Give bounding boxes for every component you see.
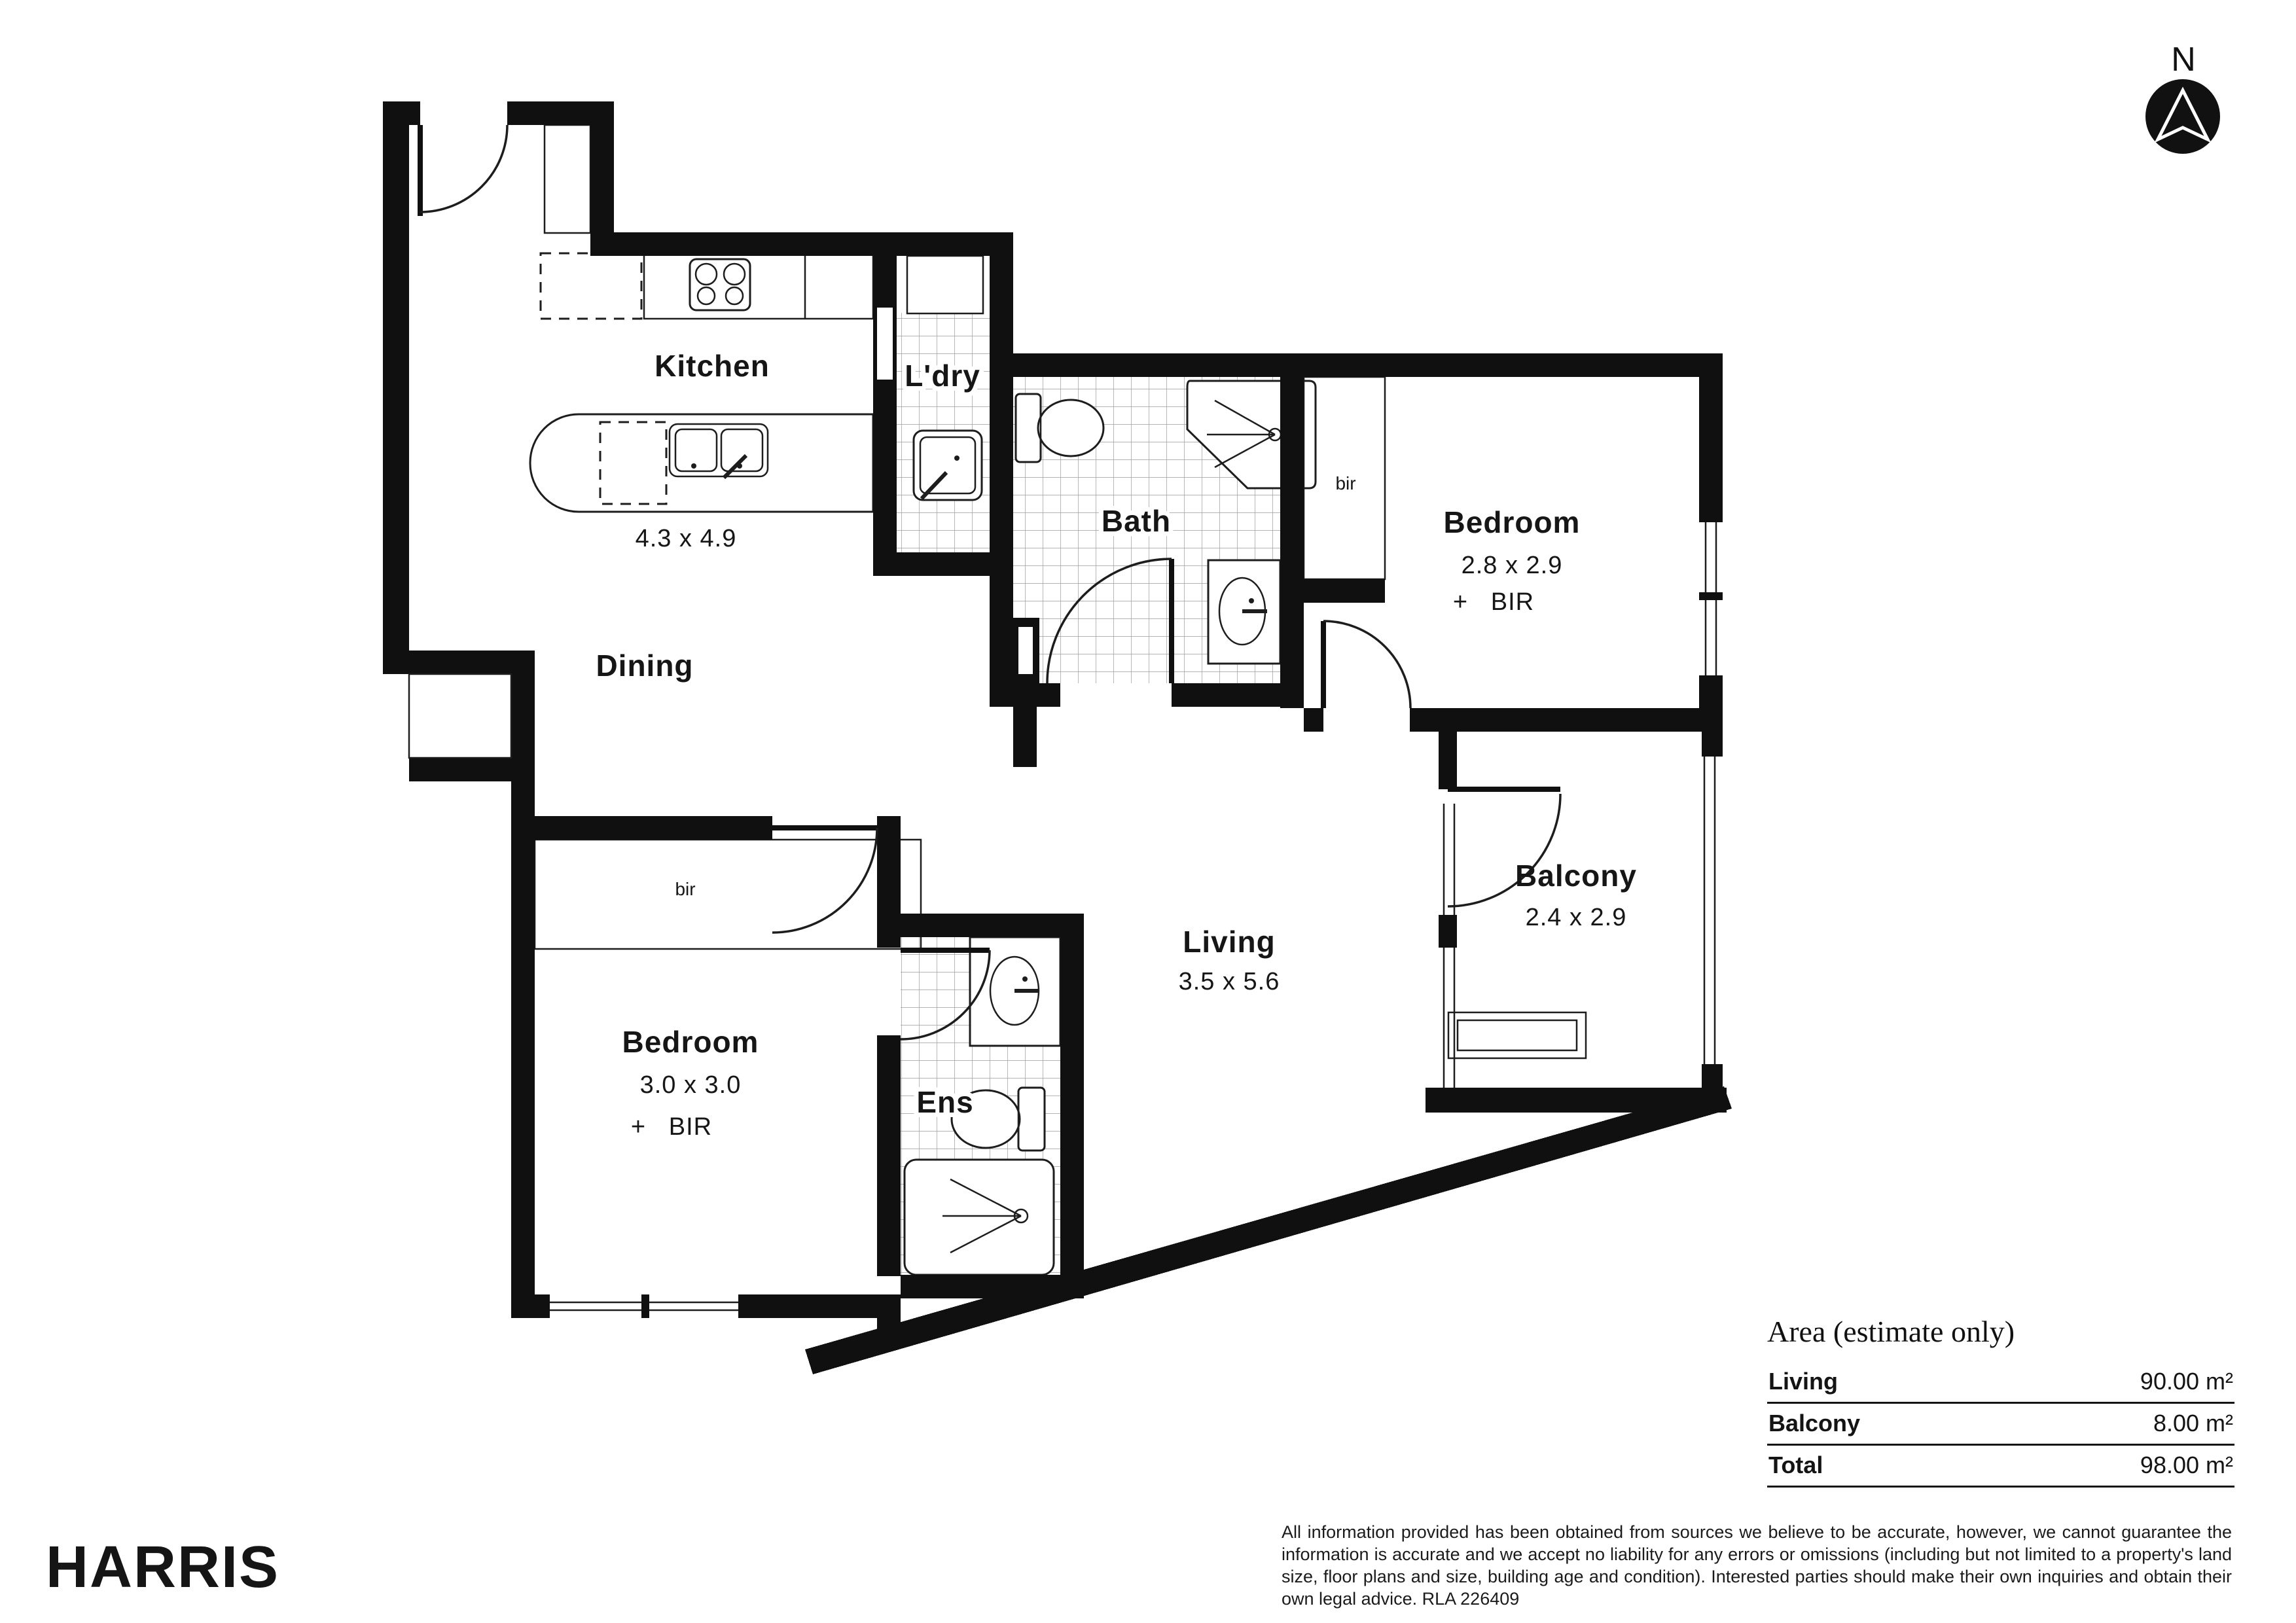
area-row-value: 98.00 m² bbox=[2140, 1452, 2233, 1479]
bedroom1-door bbox=[1323, 621, 1410, 708]
north-label: N bbox=[2171, 41, 2196, 79]
bedroom2-bir-closet bbox=[535, 840, 921, 949]
bedroom2-label: Bedroom bbox=[622, 1025, 759, 1059]
ensuite-label: Ens bbox=[916, 1085, 973, 1119]
bath-label: Bath bbox=[1102, 504, 1171, 538]
balcony-planter bbox=[1448, 1012, 1586, 1058]
ensuite-vanity-icon bbox=[970, 937, 1060, 1046]
area-row-value: 8.00 m² bbox=[2153, 1410, 2233, 1437]
laundry-label: L'dry bbox=[905, 359, 980, 393]
balcony-label: Balcony bbox=[1515, 859, 1637, 893]
bath-vanity-icon bbox=[1208, 560, 1280, 664]
kitchen-label: Kitchen bbox=[655, 349, 770, 383]
bedroom2-bir: + BIR bbox=[631, 1113, 712, 1141]
bedroom2-dims: 3.0 x 3.0 bbox=[640, 1071, 742, 1099]
bedroom1-dims: 2.8 x 2.9 bbox=[1462, 552, 1563, 579]
area-table-title: Area (estimate only) bbox=[1767, 1314, 2234, 1349]
area-row-total: Total 98.00 m² bbox=[1767, 1446, 2234, 1488]
washer-space bbox=[907, 256, 983, 313]
bedroom1-bir: + BIR bbox=[1453, 588, 1534, 616]
bedroom1-robe-label: bir bbox=[1335, 473, 1355, 493]
bedroom2-door bbox=[772, 828, 877, 933]
balcony-dims: 2.4 x 2.9 bbox=[1526, 904, 1627, 931]
floorplan-page: Kitchen 4.3 x 4.9 L'dry Bath Dining Livi… bbox=[0, 0, 2296, 1623]
living-dims: 3.5 x 5.6 bbox=[1179, 968, 1280, 995]
fridge-provision-dashed bbox=[541, 253, 641, 319]
entry-cupboard bbox=[545, 125, 590, 233]
bedroom2-robe-label: bir bbox=[675, 879, 695, 899]
ensuite-shower-icon bbox=[905, 1160, 1054, 1275]
kitchen-island bbox=[530, 414, 873, 512]
dining-label: Dining bbox=[596, 649, 693, 683]
area-table: Area (estimate only) Living 90.00 m² Bal… bbox=[1767, 1314, 2234, 1488]
area-row-value: 90.00 m² bbox=[2140, 1368, 2233, 1395]
area-row-label: Total bbox=[1768, 1452, 1823, 1479]
area-row-label: Living bbox=[1768, 1368, 1838, 1395]
area-row-label: Balcony bbox=[1768, 1410, 1860, 1437]
area-row-living: Living 90.00 m² bbox=[1767, 1362, 2234, 1404]
harris-logo: HARRIS bbox=[46, 1534, 279, 1601]
disclaimer-text: All information provided has been obtain… bbox=[1282, 1521, 2232, 1610]
kitchen-bench bbox=[541, 250, 873, 319]
kitchen-dims: 4.3 x 4.9 bbox=[636, 525, 737, 552]
west-recess bbox=[409, 674, 511, 758]
living-label: Living bbox=[1183, 925, 1275, 959]
entry-door bbox=[420, 125, 507, 216]
area-row-balcony: Balcony 8.00 m² bbox=[1767, 1404, 2234, 1446]
bedroom1-label: Bedroom bbox=[1444, 505, 1581, 539]
north-arrow: N bbox=[2145, 41, 2220, 154]
laundry-trough-icon bbox=[914, 431, 982, 500]
